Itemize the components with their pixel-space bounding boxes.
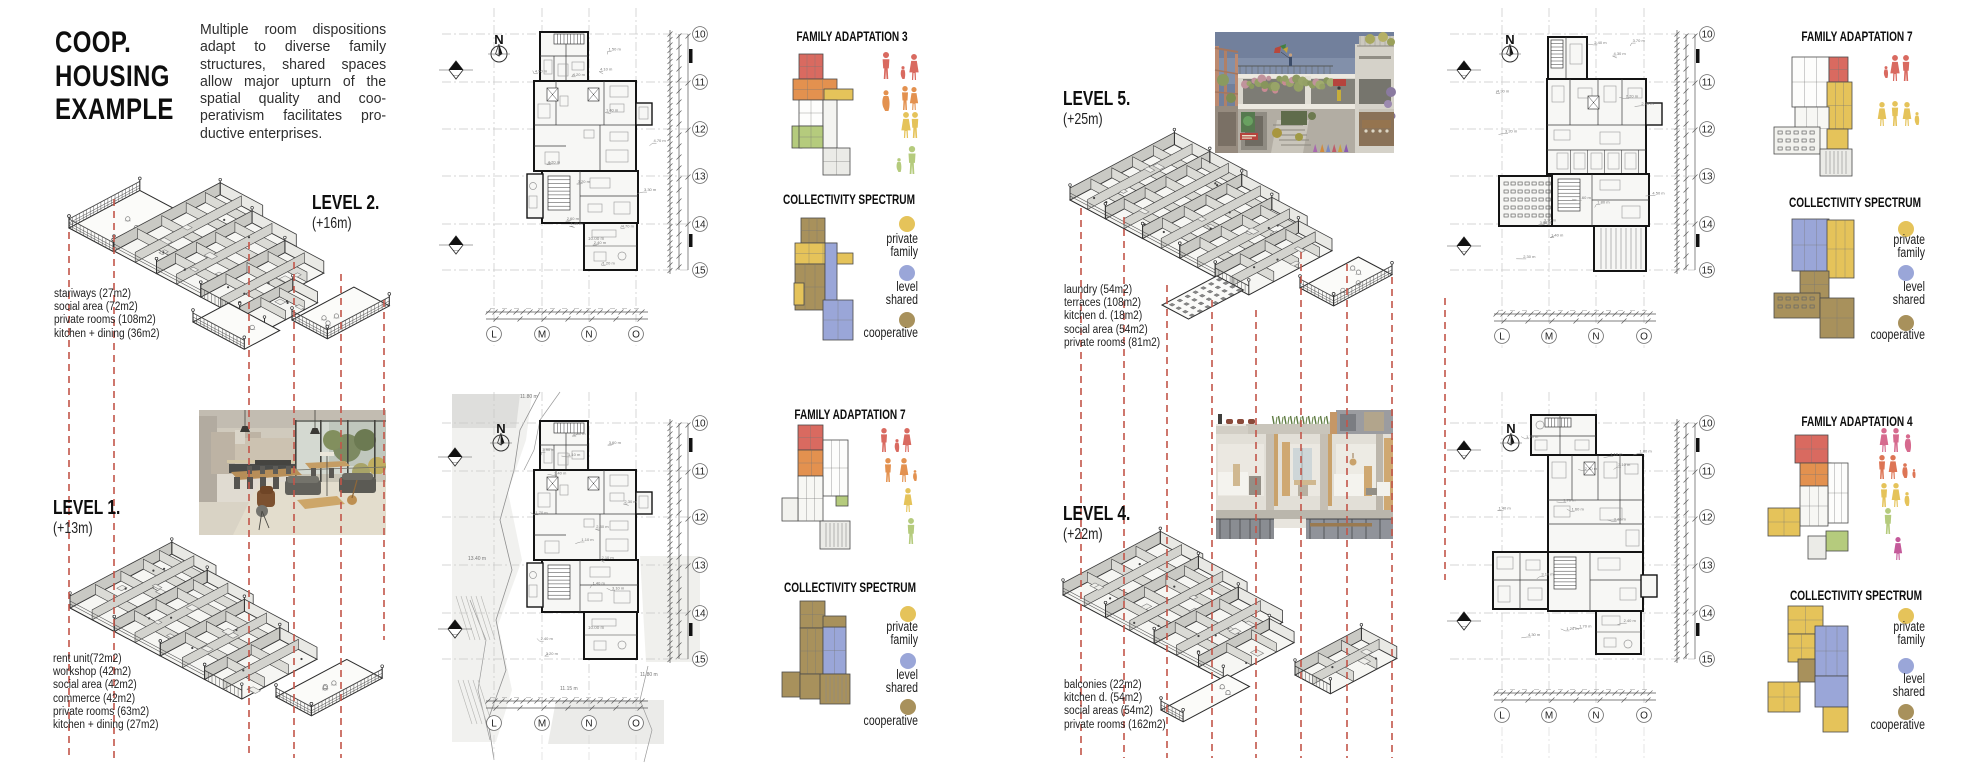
svg-text:3.10 m: 3.10 m xyxy=(1618,462,1631,467)
svg-text:2.30 m: 2.30 m xyxy=(624,499,637,504)
svg-text:L: L xyxy=(1499,332,1505,343)
svg-text:—: — xyxy=(454,73,459,79)
svg-text:N: N xyxy=(1592,332,1599,343)
svg-text:3.20 m: 3.20 m xyxy=(578,179,591,184)
svg-text:O: O xyxy=(1640,711,1648,722)
svg-text:O: O xyxy=(632,330,640,341)
svg-text:N: N xyxy=(585,330,592,341)
svg-text:12: 12 xyxy=(1701,513,1713,524)
svg-text:—: — xyxy=(1462,453,1467,459)
svg-text:3.30 m: 3.30 m xyxy=(1540,220,1553,225)
svg-text:1.20 m: 1.20 m xyxy=(603,260,616,265)
svg-text:1.80 m: 1.80 m xyxy=(1640,449,1653,454)
svg-text:—: — xyxy=(453,460,458,466)
svg-text:4.30 m: 4.30 m xyxy=(1497,88,1510,93)
svg-text:13: 13 xyxy=(1701,561,1713,572)
svg-text:13: 13 xyxy=(1701,172,1713,183)
svg-text:M: M xyxy=(538,719,546,730)
svg-text:2.20 m: 2.20 m xyxy=(1585,466,1598,471)
svg-text:12: 12 xyxy=(694,513,706,524)
svg-text:12: 12 xyxy=(694,125,706,136)
svg-text:14: 14 xyxy=(694,609,706,620)
svg-text:M: M xyxy=(1545,711,1553,722)
svg-text:3.20 m: 3.20 m xyxy=(546,651,559,656)
svg-text:L: L xyxy=(1499,711,1505,722)
svg-text:4.70 m: 4.70 m xyxy=(654,138,667,143)
svg-text:2.40 m: 2.40 m xyxy=(1594,40,1607,45)
svg-text:3.40 m: 3.40 m xyxy=(1614,517,1627,522)
svg-text:—: — xyxy=(453,632,458,638)
svg-text:11: 11 xyxy=(1702,78,1713,89)
svg-text:4.20 m: 4.20 m xyxy=(573,72,586,77)
svg-text:2.30 m: 2.30 m xyxy=(1641,101,1654,106)
svg-text:11: 11 xyxy=(1702,467,1713,478)
svg-text:3.10 m: 3.10 m xyxy=(612,585,625,590)
svg-text:O: O xyxy=(632,719,640,730)
svg-text:4.50 m: 4.50 m xyxy=(1652,190,1665,195)
svg-text:4.30 m: 4.30 m xyxy=(1528,632,1541,637)
svg-text:3.60 m: 3.60 m xyxy=(609,440,622,445)
svg-text:4.20 m: 4.20 m xyxy=(548,160,561,165)
svg-text:1.70 m: 1.70 m xyxy=(1579,624,1592,629)
svg-text:3.70 m: 3.70 m xyxy=(1633,38,1646,43)
svg-text:4.10 m: 4.10 m xyxy=(600,67,613,72)
svg-text:12: 12 xyxy=(1701,125,1713,136)
svg-text:N: N xyxy=(585,719,592,730)
svg-text:4.50 m: 4.50 m xyxy=(535,69,548,74)
svg-text:2.40 m: 2.40 m xyxy=(594,240,607,245)
svg-text:11: 11 xyxy=(695,467,706,478)
svg-text:11.80 m: 11.80 m xyxy=(640,672,658,678)
svg-text:1.70 m: 1.70 m xyxy=(535,510,548,515)
svg-text:14: 14 xyxy=(694,220,706,231)
svg-text:13: 13 xyxy=(694,561,706,572)
svg-text:1.40 m: 1.40 m xyxy=(1551,233,1564,238)
svg-text:2.20 m: 2.20 m xyxy=(1626,94,1639,99)
svg-text:4.70 m: 4.70 m xyxy=(622,223,635,228)
svg-text:3.40 m: 3.40 m xyxy=(554,470,567,475)
svg-text:1.40 m: 1.40 m xyxy=(1499,505,1512,510)
svg-text:13.40 m: 13.40 m xyxy=(468,556,486,562)
svg-text:1.60 m: 1.60 m xyxy=(1572,506,1585,511)
svg-text:10: 10 xyxy=(1701,30,1713,41)
svg-text:O: O xyxy=(1640,332,1648,343)
svg-text:1.70 m: 1.70 m xyxy=(1563,498,1576,503)
svg-text:1.10 m: 1.10 m xyxy=(568,452,581,457)
svg-text:10: 10 xyxy=(1701,419,1713,430)
svg-text:N: N xyxy=(1592,711,1599,722)
svg-text:1.80 m: 1.80 m xyxy=(1597,200,1610,205)
svg-text:2.80 m: 2.80 m xyxy=(573,431,586,436)
svg-text:1.10 m: 1.10 m xyxy=(581,537,594,542)
svg-text:—: — xyxy=(1462,624,1467,630)
svg-text:1.40 m: 1.40 m xyxy=(606,108,619,113)
svg-text:—: — xyxy=(1462,73,1467,79)
svg-text:3.30 m: 3.30 m xyxy=(644,187,657,192)
svg-text:4.40 m: 4.40 m xyxy=(570,221,583,226)
svg-text:2.10 m: 2.10 m xyxy=(602,555,615,560)
svg-text:M: M xyxy=(538,330,546,341)
svg-text:14: 14 xyxy=(1701,220,1713,231)
svg-text:3.20 m: 3.20 m xyxy=(1505,128,1518,133)
svg-text:2.80 m: 2.80 m xyxy=(596,524,609,529)
svg-text:11.15 m: 11.15 m xyxy=(560,686,578,692)
svg-text:L: L xyxy=(491,330,497,341)
svg-text:10: 10 xyxy=(694,419,706,430)
svg-text:11: 11 xyxy=(695,78,706,89)
svg-text:1.50 m: 1.50 m xyxy=(609,46,622,51)
svg-text:10.00 m: 10.00 m xyxy=(588,625,605,630)
svg-text:13: 13 xyxy=(694,172,706,183)
svg-text:—: — xyxy=(454,248,459,254)
svg-text:—: — xyxy=(1462,249,1467,255)
svg-text:1.10 m: 1.10 m xyxy=(1610,452,1623,457)
svg-text:15: 15 xyxy=(694,655,706,666)
svg-text:15: 15 xyxy=(1701,655,1713,666)
svg-text:2.40 m: 2.40 m xyxy=(1624,618,1637,623)
svg-text:2.40 m: 2.40 m xyxy=(541,636,554,641)
svg-text:1.70 m: 1.70 m xyxy=(1526,434,1539,439)
svg-text:4.30 m: 4.30 m xyxy=(1614,51,1627,56)
svg-text:15: 15 xyxy=(694,266,706,277)
svg-text:2.30 m: 2.30 m xyxy=(1523,254,1536,259)
svg-text:M: M xyxy=(1545,332,1553,343)
svg-text:14: 14 xyxy=(1701,609,1713,620)
svg-text:L: L xyxy=(491,719,497,730)
svg-text:10: 10 xyxy=(694,30,706,41)
svg-text:1.40 m: 1.40 m xyxy=(593,580,606,585)
svg-text:11.80 m: 11.80 m xyxy=(520,394,538,400)
svg-text:3.90 m: 3.90 m xyxy=(542,447,555,452)
svg-text:1.20 m: 1.20 m xyxy=(1566,626,1579,631)
svg-text:15: 15 xyxy=(1701,266,1713,277)
svg-text:3.10 m: 3.10 m xyxy=(1541,571,1554,576)
svg-text:1.60 m: 1.60 m xyxy=(1579,195,1592,200)
